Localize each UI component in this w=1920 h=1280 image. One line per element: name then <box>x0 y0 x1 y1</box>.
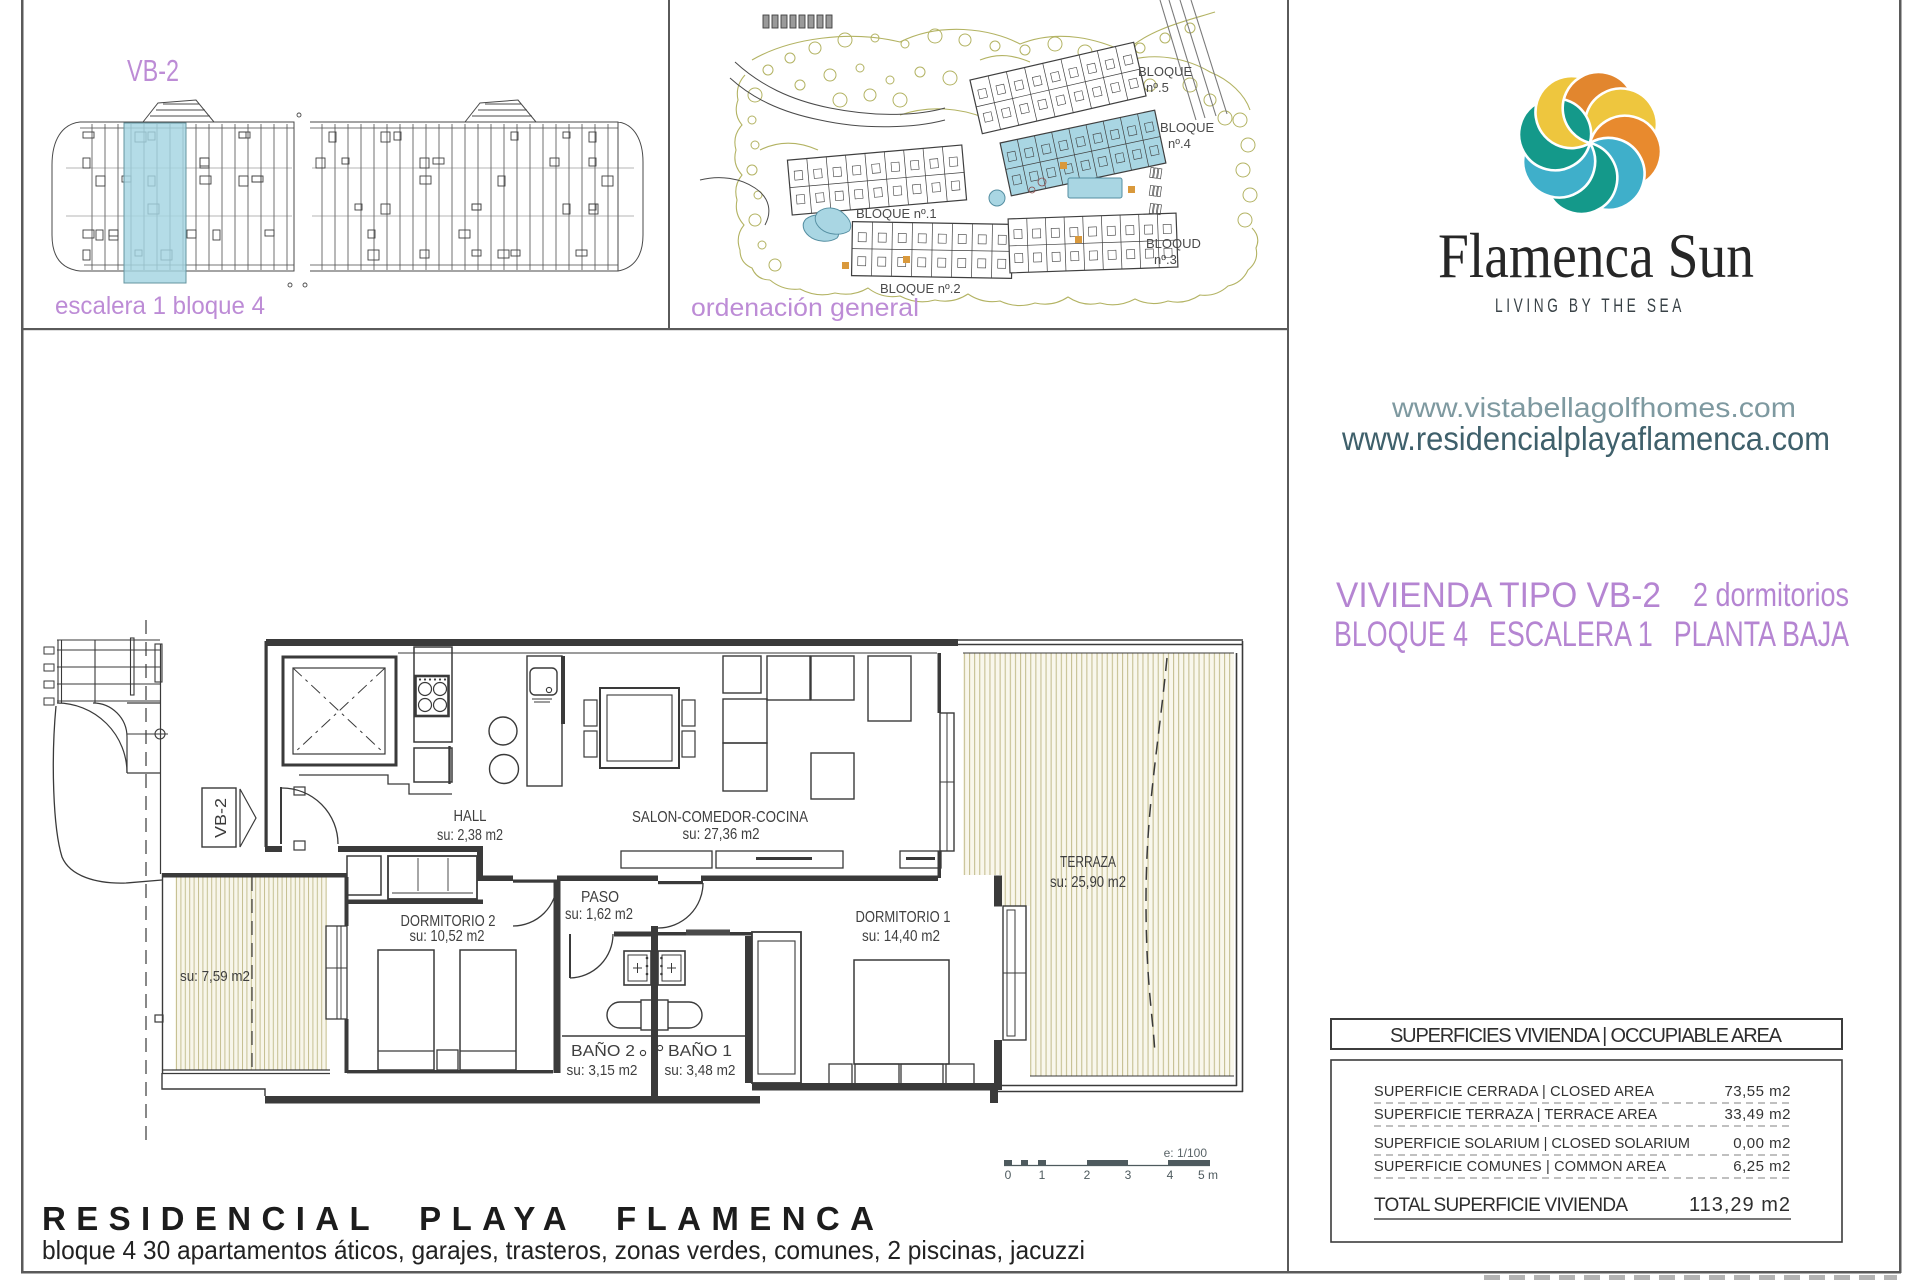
svg-text:SUPERFICIE CERRADA | CLOSED AR: SUPERFICIE CERRADA | CLOSED AREA <box>1374 1084 1654 1100</box>
svg-text:BLOQUE: BLOQUE <box>1160 120 1215 135</box>
svg-text:BLOQUE: BLOQUE <box>1138 64 1193 79</box>
svg-text:HALL: HALL <box>454 808 487 825</box>
svg-text:0: 0 <box>1005 1168 1012 1182</box>
svg-text:33,49 m2: 33,49 m2 <box>1724 1106 1791 1123</box>
svg-text:DORMITORIO 1: DORMITORIO 1 <box>856 909 951 926</box>
svg-text:VIVIENDA TIPO VB-2: VIVIENDA TIPO VB-2 <box>1336 576 1661 615</box>
svg-text:su: 7,59 m2: su: 7,59 m2 <box>180 968 250 985</box>
svg-text:bloque 4 30 apartamentos ático: bloque 4 30 apartamentos áticos, garajes… <box>42 1235 1085 1265</box>
svg-text:su: 10,52 m2: su: 10,52 m2 <box>410 928 485 945</box>
svg-text:escalera 1 bloque 4: escalera 1 bloque 4 <box>55 292 265 320</box>
svg-text:BLOQUE nº.1: BLOQUE nº.1 <box>856 206 937 221</box>
svg-text:SALON-COMEDOR-COCINA: SALON-COMEDOR-COCINA <box>632 809 808 826</box>
svg-text:www.residencialplayaflamenca.c: www.residencialplayaflamenca.com <box>1341 420 1830 457</box>
svg-text:TOTAL SUPERFICIE VIVIENDA: TOTAL SUPERFICIE VIVIENDA <box>1374 1195 1628 1216</box>
svg-text:SUPERFICIE TERRAZA | TERRACE: SUPERFICIE TERRAZA | TERRACE AREA <box>1374 1107 1657 1123</box>
svg-text:2 dormitorios: 2 dormitorios <box>1693 576 1849 613</box>
svg-text:nº.4: nº.4 <box>1168 136 1191 151</box>
svg-text:113,29 m2: 113,29 m2 <box>1689 1194 1791 1216</box>
svg-text:Flamenca Sun: Flamenca Sun <box>1438 220 1754 291</box>
svg-text:su: 1,62 m2: su: 1,62 m2 <box>565 906 633 923</box>
svg-text:BLOQUE 4 ESCALERA 1 PLANTA B: BLOQUE 4 ESCALERA 1 PLANTA BAJA <box>1334 615 1849 654</box>
svg-text:SUPERFICIE COMUNES | COMMON AR: SUPERFICIE COMUNES | COMMON AREA <box>1374 1159 1666 1175</box>
svg-text:su: 27,36 m2: su: 27,36 m2 <box>683 826 760 843</box>
svg-text:3: 3 <box>1125 1168 1132 1182</box>
svg-text:VB-2: VB-2 <box>213 798 230 838</box>
svg-text:su: 2,38 m2: su: 2,38 m2 <box>437 827 503 844</box>
svg-text:2: 2 <box>1084 1168 1091 1182</box>
svg-text:su: 25,90 m2: su: 25,90 m2 <box>1050 874 1126 891</box>
svg-text:6,25 m2: 6,25 m2 <box>1733 1158 1791 1175</box>
svg-text:PASO: PASO <box>581 889 619 906</box>
svg-text:su: 3,15 m2: su: 3,15 m2 <box>567 1062 638 1079</box>
svg-text:VB-2: VB-2 <box>127 53 179 88</box>
svg-text:TERRAZA: TERRAZA <box>1060 854 1117 871</box>
svg-text:RESIDENCIAL PLAYA FLAMENCA: RESIDENCIAL PLAYA FLAMENCA <box>42 1200 887 1237</box>
svg-text:nº.3: nº.3 <box>1154 252 1177 267</box>
svg-text:5 m: 5 m <box>1198 1168 1218 1182</box>
svg-text:BAÑO 2: BAÑO 2 <box>571 1043 635 1060</box>
svg-text:nº.5: nº.5 <box>1146 80 1169 95</box>
svg-text:4: 4 <box>1167 1168 1174 1182</box>
svg-text:BLOQUD: BLOQUD <box>1146 236 1201 251</box>
svg-text:SUPERFICIE SOLARIUM | CLOSED S: SUPERFICIE SOLARIUM | CLOSED SOLARIUM <box>1374 1136 1690 1152</box>
svg-text:LIVING BY THE SEA: LIVING BY THE SEA <box>1495 296 1685 317</box>
svg-text:1: 1 <box>1039 1168 1046 1182</box>
svg-text:73,55 m2: 73,55 m2 <box>1724 1083 1791 1100</box>
svg-text:BAÑO 1: BAÑO 1 <box>668 1043 732 1060</box>
svg-text:su: 14,40 m2: su: 14,40 m2 <box>862 928 940 945</box>
svg-text:e: 1/100: e: 1/100 <box>1164 1146 1208 1160</box>
svg-text:www.vistabellagolfhomes.com: www.vistabellagolfhomes.com <box>1391 392 1796 423</box>
svg-text:0,00 m2: 0,00 m2 <box>1733 1135 1791 1152</box>
svg-text:ordenación general: ordenación general <box>691 294 919 322</box>
svg-text:SUPERFICIES VIVIENDA | OCCUPIA: SUPERFICIES VIVIENDA | OCCUPIABLE AREA <box>1390 1025 1783 1047</box>
svg-text:su: 3,48 m2: su: 3,48 m2 <box>665 1062 736 1079</box>
